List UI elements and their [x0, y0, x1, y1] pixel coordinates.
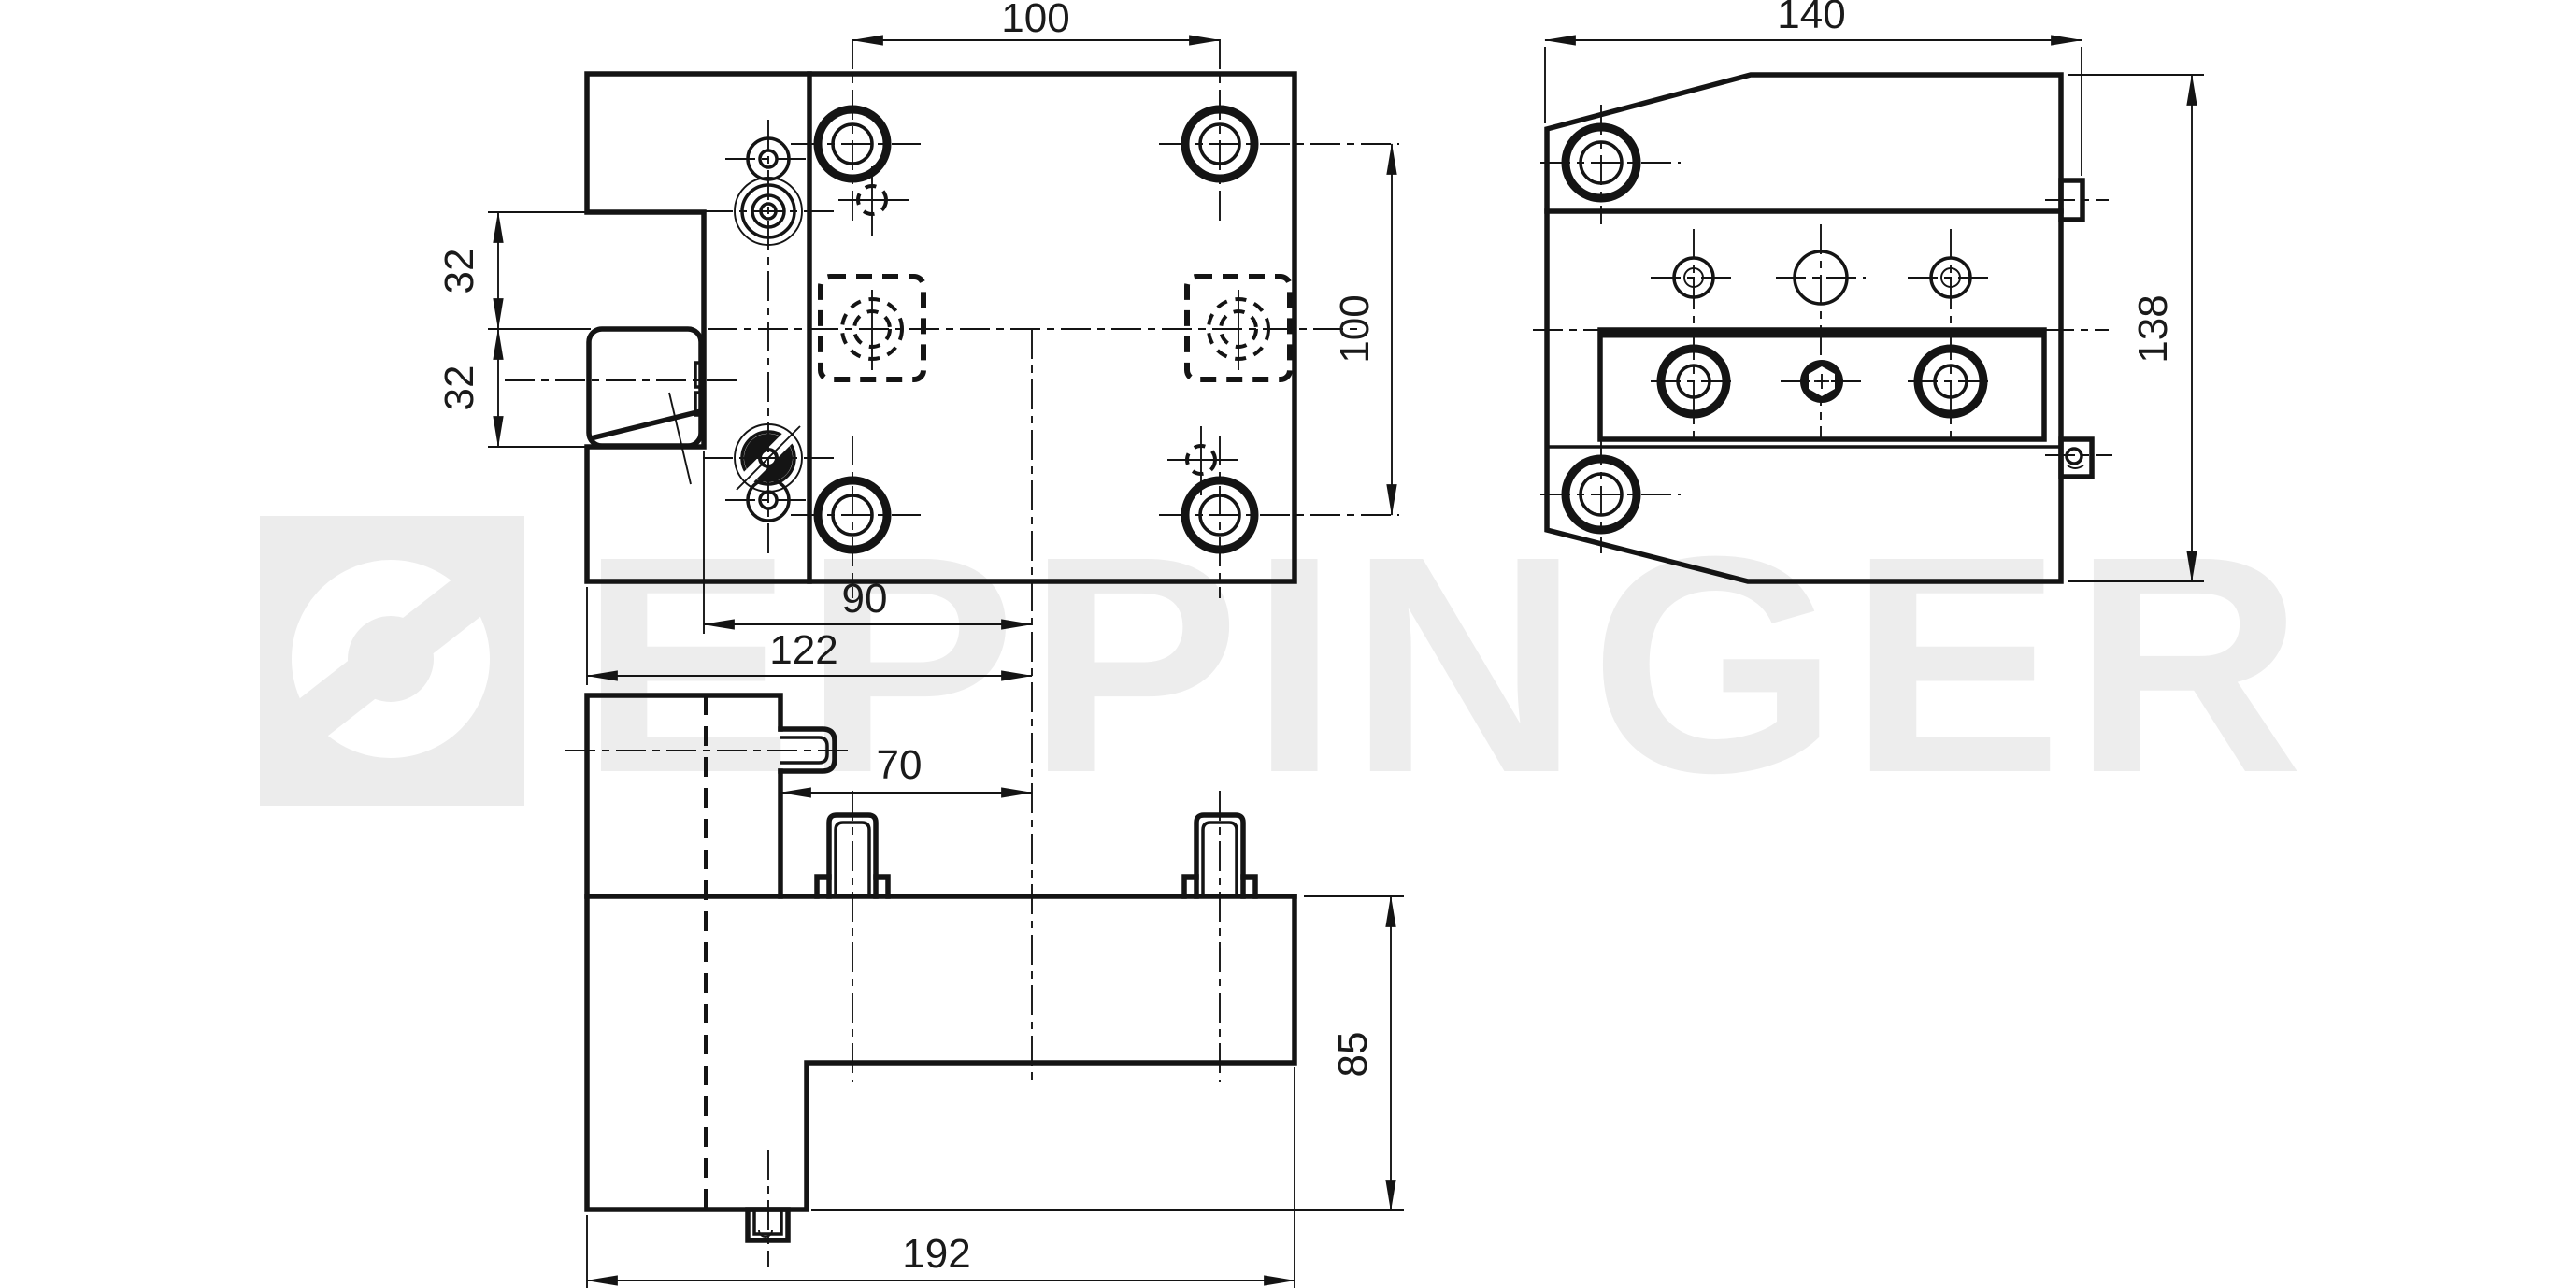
- stud-left: [817, 791, 888, 1082]
- drawing-canvas: EPPINGER: [0, 0, 2576, 1288]
- dim-label-32-lower: 32: [436, 365, 482, 411]
- dim-100-right: 100: [1332, 144, 1392, 515]
- technical-drawing: EPPINGER: [0, 0, 2576, 1288]
- dim-label-100-top: 100: [1001, 0, 1069, 41]
- dim-100-top: 100: [852, 0, 1220, 41]
- dim-85: 85: [811, 896, 1404, 1210]
- counterbore-hole-top-right: [1159, 39, 1399, 224]
- dim-label-32-upper: 32: [436, 249, 482, 294]
- hex-socket-screw: [1781, 360, 1863, 403]
- dim-192: 192: [587, 1067, 1295, 1288]
- dim-label-90: 90: [842, 576, 888, 622]
- dim-label-100-right: 100: [1332, 294, 1378, 363]
- dim-label-70: 70: [877, 742, 923, 788]
- dim-140: 140: [1545, 0, 2082, 176]
- hidden-pocket-left: [821, 277, 923, 379]
- hidden-pocket-right: [1187, 277, 1290, 379]
- dim-label-138: 138: [2130, 294, 2176, 363]
- stud-right: [1184, 791, 1255, 1082]
- dim-32-pair: 32 32: [436, 212, 591, 447]
- dim-label-192: 192: [902, 1231, 970, 1277]
- bottom-plug: [748, 1150, 788, 1267]
- eppinger-logo-icon: [288, 569, 494, 744]
- dim-label-85: 85: [1330, 1032, 1376, 1078]
- dim-label-122: 122: [769, 627, 837, 673]
- dim-label-140: 140: [1777, 0, 1845, 37]
- right-edge-insert: [2045, 439, 2112, 477]
- watermark: EPPINGER: [260, 492, 2313, 837]
